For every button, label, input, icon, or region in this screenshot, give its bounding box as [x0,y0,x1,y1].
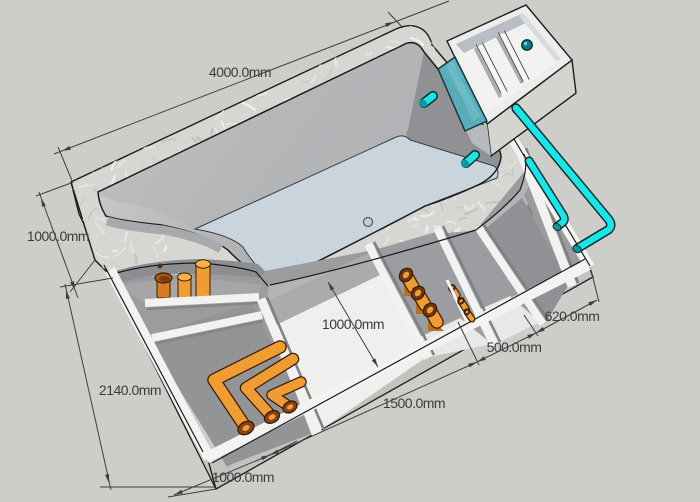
svg-text:620.0mm: 620.0mm [545,308,600,324]
svg-text:1000.0mm: 1000.0mm [212,469,274,485]
svg-text:1000.0mm: 1000.0mm [322,316,384,332]
svg-text:500.0mm: 500.0mm [487,339,542,355]
svg-text:4000.0mm: 4000.0mm [209,64,271,80]
svg-text:1500.0mm: 1500.0mm [383,395,445,411]
svg-text:2140.0mm: 2140.0mm [99,382,161,398]
svg-text:1000.0mm: 1000.0mm [27,228,89,244]
